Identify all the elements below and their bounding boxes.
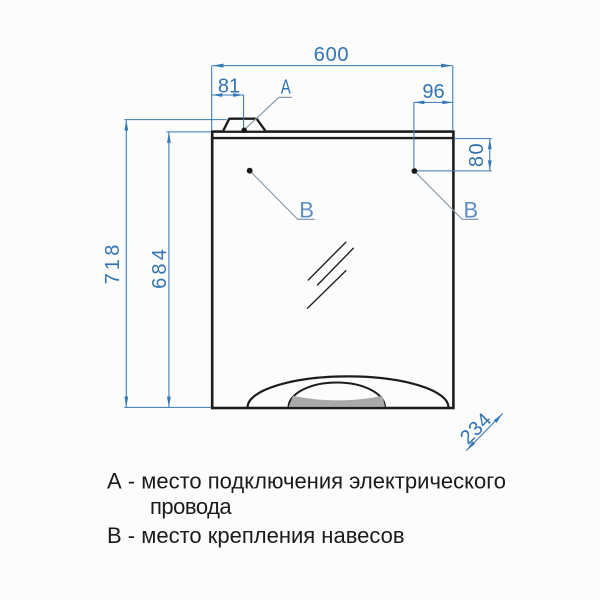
svg-text:718: 718 [102,241,124,284]
svg-text:В: В [464,198,479,223]
svg-text:96: 96 [422,81,444,103]
svg-text:В: В [299,198,314,223]
svg-text:В - место крепления навесов: В - место крепления навесов [107,523,405,548]
svg-text:684: 684 [149,246,171,289]
svg-text:600: 600 [314,44,349,66]
svg-text:81: 81 [218,76,240,98]
svg-text:А - место подключения электрич: А - место подключения электрического [107,469,506,494]
svg-text:А: А [281,76,291,98]
svg-text:80: 80 [466,142,488,167]
svg-text:провода: провода [150,494,232,519]
